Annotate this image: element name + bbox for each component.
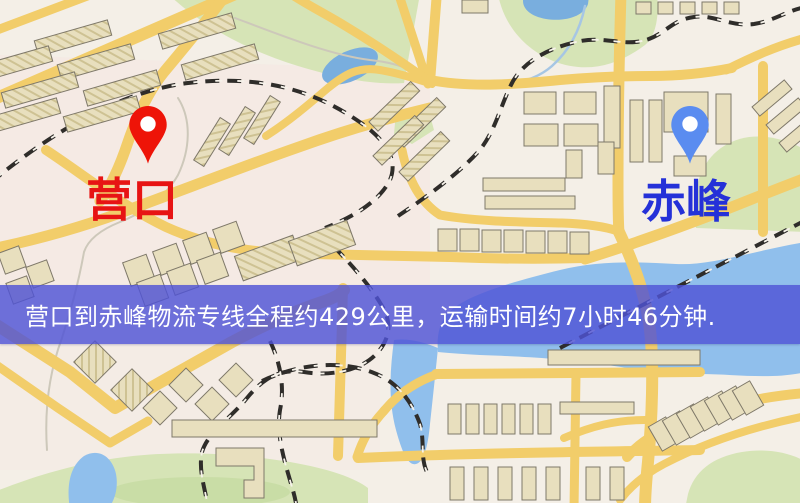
origin-pin-icon[interactable] — [126, 101, 170, 166]
map-background — [0, 0, 800, 503]
destination-pin-icon[interactable] — [668, 101, 712, 166]
route-info-banner: 营口到赤峰物流专线全程约429公里，运输时间约7小时46分钟. — [0, 285, 800, 344]
origin-label: 营口 — [86, 177, 178, 223]
map-screenshot: 营口 赤峰 营口到赤峰物流专线全程约429公里，运输时间约7小时46分钟. — [0, 0, 800, 503]
destination-label: 赤峰 — [641, 179, 731, 224]
route-info-text: 营口到赤峰物流专线全程约429公里，运输时间约7小时46分钟. — [0, 297, 716, 332]
